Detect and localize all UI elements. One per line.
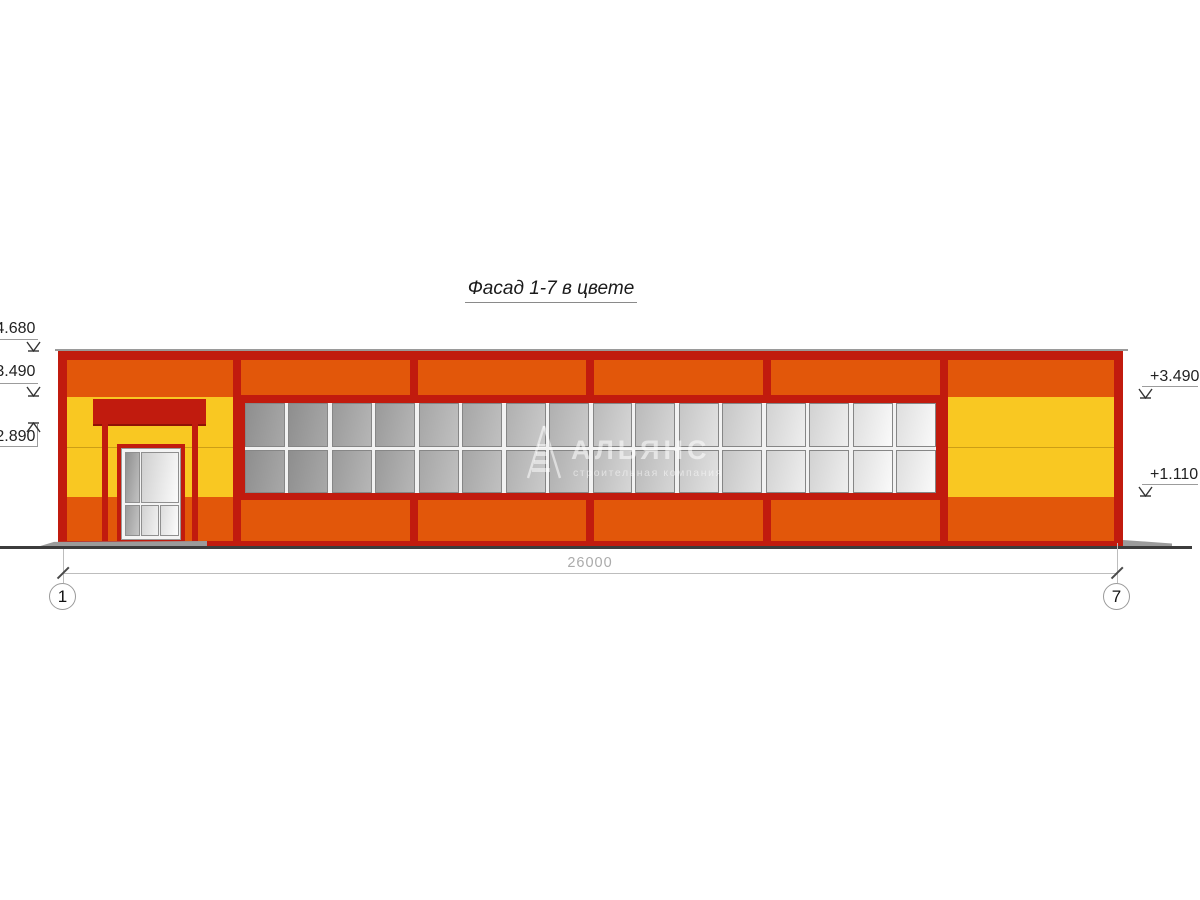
window-unit	[332, 403, 415, 493]
drawing-sheet: Фасад 1-7 в цвете	[0, 0, 1200, 900]
axis-bubble-7: 7	[1103, 583, 1130, 610]
window-glass-pane	[462, 403, 502, 447]
level-leader	[1142, 386, 1198, 387]
level-mark-right-parapet: +3.490	[1150, 368, 1199, 386]
window-glass-pane	[679, 450, 719, 494]
door-glass-pane	[160, 505, 179, 536]
window-glass-pane	[462, 450, 502, 494]
level-mark-left-parapet: +3.490	[0, 363, 35, 381]
level-mark-right-sill: +1.110	[1150, 466, 1198, 484]
window-glass-pane	[332, 450, 372, 494]
building-facade	[58, 351, 1123, 546]
ground-line	[0, 546, 1192, 549]
dimension-value: 26000	[530, 555, 650, 571]
window-glass-pane	[809, 450, 849, 494]
window-glass-pane	[679, 403, 719, 447]
canopy-post-right	[192, 424, 198, 542]
extension-line-right	[1117, 543, 1118, 583]
window-glass-pane	[375, 450, 415, 494]
window-glass-pane	[853, 450, 893, 494]
level-arrow-down-icon	[1138, 486, 1153, 497]
window-glass-pane	[245, 403, 285, 447]
ribbon-window-glazing	[245, 403, 936, 493]
entrance-door-frame	[117, 444, 185, 542]
window-glass-pane	[896, 450, 936, 494]
yellow-band-right-bay	[948, 397, 1114, 497]
window-glass-pane	[896, 403, 936, 447]
entrance-canopy	[93, 399, 206, 426]
window-glass-pane	[245, 450, 285, 494]
door-glass-pane	[125, 452, 140, 503]
window-glass-pane	[419, 403, 459, 447]
door-glass-pane	[141, 452, 179, 503]
ribbon-window-frame	[237, 395, 944, 500]
level-arrow-down-icon	[26, 341, 41, 352]
level-arrow-down-icon	[26, 386, 41, 397]
window-glass-pane	[506, 450, 546, 494]
drawing-title-text: Фасад 1-7 в цвете	[465, 278, 638, 303]
canopy-post-left	[102, 424, 108, 542]
window-glass-pane	[549, 450, 589, 494]
level-arrow-up-icon	[26, 422, 41, 433]
window-glass-pane	[635, 403, 675, 447]
window-glass-pane	[853, 403, 893, 447]
door-glass-pane	[141, 505, 159, 536]
window-glass-pane	[766, 403, 806, 447]
level-leader	[0, 383, 38, 384]
window-unit	[766, 403, 849, 493]
window-glass-pane	[419, 450, 459, 494]
window-glass-pane	[288, 450, 328, 494]
window-glass-pane	[809, 403, 849, 447]
panel-joint-line	[948, 447, 1114, 448]
window-glass-pane	[635, 450, 675, 494]
door-glass-pane	[125, 505, 140, 536]
window-glass-pane	[549, 403, 589, 447]
window-glass-pane	[375, 403, 415, 447]
window-unit	[245, 403, 328, 493]
window-unit	[679, 403, 762, 493]
axis-bubble-1: 1	[49, 583, 76, 610]
window-unit	[593, 403, 676, 493]
window-glass-pane	[766, 450, 806, 494]
window-glass-pane	[288, 403, 328, 447]
entrance-door	[121, 448, 181, 540]
window-glass-pane	[593, 403, 633, 447]
window-glass-pane	[506, 403, 546, 447]
facade-right-border	[1114, 351, 1123, 546]
window-unit	[853, 403, 936, 493]
level-arrow-down-icon	[1138, 388, 1153, 399]
window-glass-pane	[722, 450, 762, 494]
facade-left-border	[58, 351, 67, 546]
window-glass-pane	[722, 403, 762, 447]
window-unit	[419, 403, 502, 493]
drawing-title: Фасад 1-7 в цвете	[400, 278, 702, 300]
extension-line-left	[63, 549, 64, 583]
level-leader	[0, 339, 38, 340]
level-leader	[0, 446, 38, 447]
window-glass-pane	[332, 403, 372, 447]
level-leader	[1142, 484, 1198, 485]
dimension-line	[63, 573, 1117, 574]
level-mark-left-roof: +4.680	[0, 320, 35, 338]
window-unit	[506, 403, 589, 493]
window-glass-pane	[593, 450, 633, 494]
